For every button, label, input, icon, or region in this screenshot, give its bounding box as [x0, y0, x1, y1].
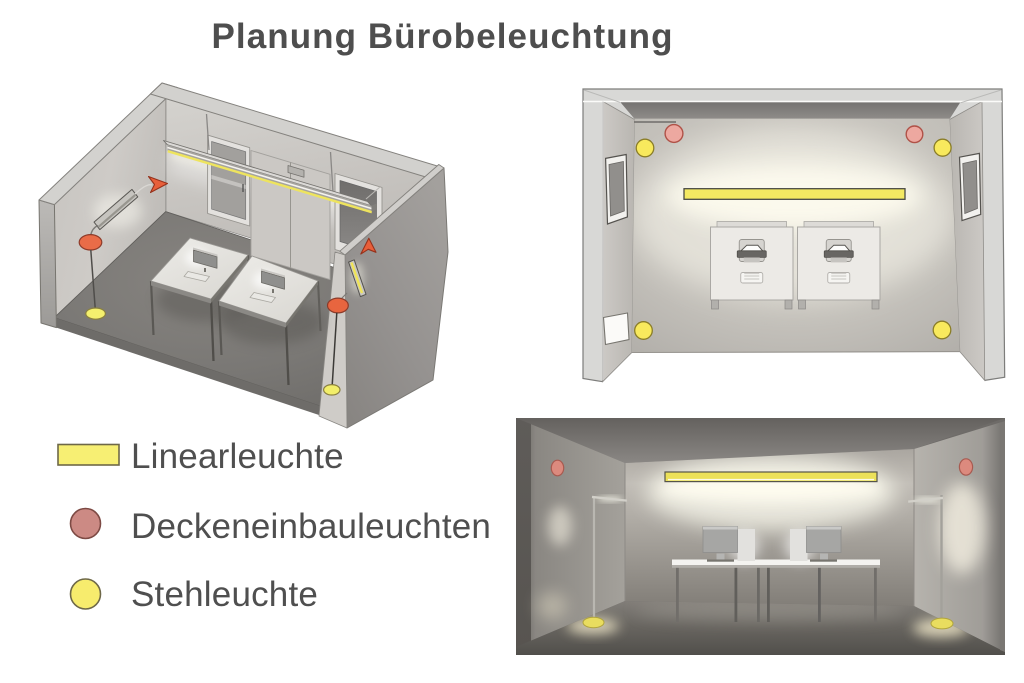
svg-text:Stehleuchte: Stehleuchte	[131, 575, 318, 614]
svg-text:Linearleuchte: Linearleuchte	[131, 437, 344, 476]
svg-text:Deckeneinbauleuchten: Deckeneinbauleuchten	[131, 507, 491, 546]
svg-text:Planung Bürobeleuchtung: Planung Bürobeleuchtung	[212, 17, 673, 56]
